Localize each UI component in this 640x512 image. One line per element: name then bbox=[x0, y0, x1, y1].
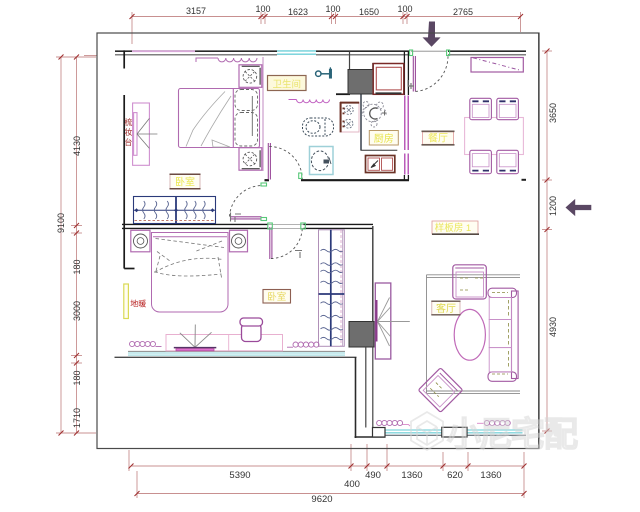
svg-text:卫生间: 卫生间 bbox=[272, 79, 301, 91]
svg-text:620: 620 bbox=[447, 470, 463, 481]
svg-text:3157: 3157 bbox=[186, 6, 206, 16]
svg-text:梳妆台: 梳妆台 bbox=[124, 117, 133, 147]
svg-text:100: 100 bbox=[255, 4, 270, 14]
svg-text:1623: 1623 bbox=[288, 7, 308, 17]
svg-text:1200: 1200 bbox=[548, 196, 558, 216]
svg-text:3650: 3650 bbox=[548, 103, 558, 123]
svg-text:地暖: 地暖 bbox=[130, 299, 146, 309]
svg-text:小: 小 bbox=[447, 416, 481, 454]
svg-text:180: 180 bbox=[72, 370, 82, 385]
svg-text:180: 180 bbox=[72, 259, 82, 274]
svg-text:宅: 宅 bbox=[511, 415, 545, 454]
svg-text:配: 配 bbox=[544, 416, 578, 454]
svg-text:9620: 9620 bbox=[311, 494, 332, 505]
svg-text:卧室: 卧室 bbox=[175, 176, 195, 189]
svg-text:厨房: 厨房 bbox=[374, 132, 394, 145]
svg-text:400: 400 bbox=[344, 479, 360, 490]
svg-text:餐厅: 餐厅 bbox=[428, 132, 448, 145]
svg-text:5390: 5390 bbox=[229, 470, 250, 481]
svg-text:1650: 1650 bbox=[359, 7, 379, 17]
svg-text:4130: 4130 bbox=[72, 136, 82, 156]
svg-text:样板房 1: 样板房 1 bbox=[435, 222, 471, 234]
svg-text:4930: 4930 bbox=[548, 317, 558, 337]
svg-text:1360: 1360 bbox=[401, 470, 422, 481]
svg-text:客厅: 客厅 bbox=[436, 302, 456, 315]
svg-text:1710: 1710 bbox=[72, 408, 82, 428]
svg-text:1360: 1360 bbox=[480, 470, 501, 481]
svg-text:9100: 9100 bbox=[56, 213, 66, 233]
svg-text:尼: 尼 bbox=[479, 416, 513, 454]
svg-text:100: 100 bbox=[397, 4, 412, 14]
svg-text:3000: 3000 bbox=[72, 301, 82, 321]
svg-text:2765: 2765 bbox=[453, 7, 473, 17]
svg-text:100: 100 bbox=[325, 4, 340, 14]
svg-text:卧室: 卧室 bbox=[267, 291, 286, 303]
svg-text:490: 490 bbox=[365, 470, 381, 481]
